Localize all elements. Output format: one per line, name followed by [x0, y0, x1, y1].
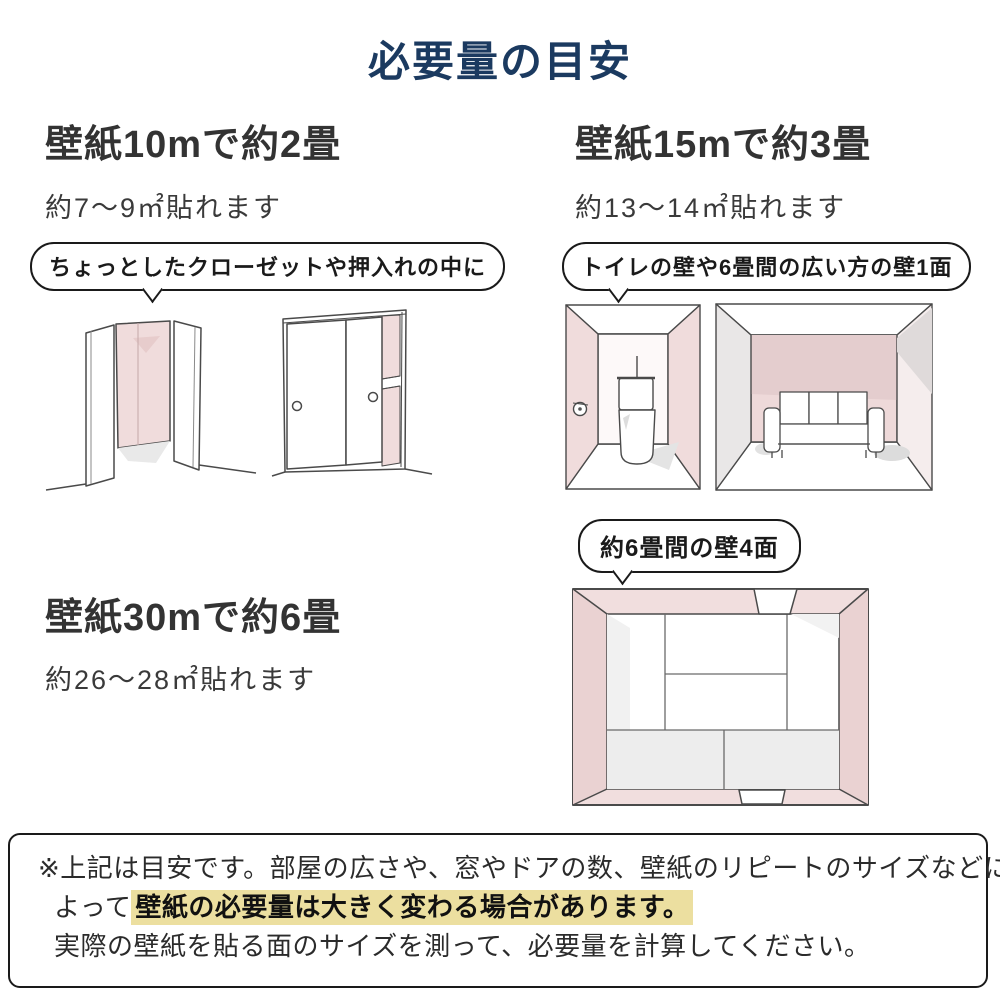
section-30m-heading: 壁紙30mで約6畳 [45, 597, 341, 641]
note-line-3: 実際の壁紙を貼る面のサイズを測って、必要量を計算してください。 [54, 927, 968, 966]
section-15m-subtext: 約13〜14㎡貼れます [575, 186, 846, 225]
section-30m-subtext: 約26〜28㎡貼れます [45, 658, 316, 697]
note-line-1: ※上記は目安です。部屋の広さや、窓やドアの数、壁紙のリピートのサイズなどに [38, 849, 968, 888]
section-10m-subtext: 約7〜9㎡貼れます [45, 186, 282, 225]
section-10m-heading: 壁紙10mで約2畳 [45, 124, 341, 168]
section-15m-heading: 壁紙15mで約3畳 [575, 124, 871, 168]
section-30m-caption-bubble: 約6畳間の壁4面 [578, 519, 801, 573]
toilet-room-illustration [563, 302, 703, 492]
note-highlight: 壁紙の必要量は大きく変わる場合があります。 [131, 890, 693, 925]
note-line-2: よって壁紙の必要量は大きく変わる場合があります。 [54, 888, 968, 927]
sofa-room-illustration [714, 302, 934, 492]
closet-open-illustration [38, 300, 263, 495]
note-box: ※上記は目安です。部屋の広さや、窓やドアの数、壁紙のリピートのサイズなどに よっ… [8, 833, 988, 988]
room-top-view-illustration [568, 582, 873, 812]
note-line-2-prefix: よって [54, 892, 131, 922]
page-title: 必要量の目安 [0, 28, 1000, 89]
section-15m-caption-bubble: トイレの壁や6畳間の広い方の壁1面 [562, 242, 971, 291]
section-10m-caption-bubble: ちょっとしたクローゼットや押入れの中に [30, 242, 505, 291]
closet-sliding-doors-illustration [270, 303, 435, 488]
infographic-wallpaper-quantity: 必要量の目安 壁紙10mで約2畳 約7〜9㎡貼れます ちょっとしたクローゼットや… [0, 0, 1000, 1000]
